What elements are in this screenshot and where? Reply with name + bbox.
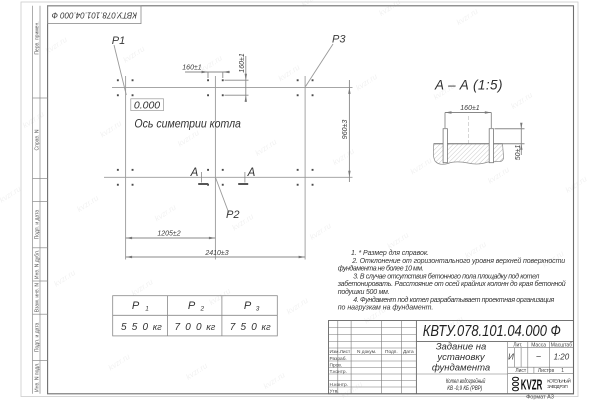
svg-text:Изм.Лист: Изм.Лист — [330, 349, 352, 355]
svg-text:Лист: Лист — [515, 368, 527, 374]
svg-text:960±3: 960±3 — [342, 120, 349, 140]
svg-text:фундамента: фундамента — [432, 363, 490, 374]
svg-text:1: 1 — [145, 306, 149, 313]
svg-text:P1: P1 — [112, 35, 125, 47]
svg-text:550: 550 — [121, 322, 148, 333]
svg-text:50±1: 50±1 — [515, 145, 522, 161]
svg-text:И: И — [508, 353, 514, 362]
svg-text:Подп. и дата: Подп. и дата — [35, 322, 41, 352]
svg-text:по нагрузкам на фундамент.: по нагрузкам на фундамент. — [338, 304, 434, 312]
svg-text:КВТУ.078.101.04.000 Ф: КВТУ.078.101.04.000 Ф — [51, 11, 137, 20]
svg-text:установку: установку — [436, 352, 486, 363]
svg-text:Перв. примен.: Перв. примен. — [35, 21, 41, 54]
svg-text:кг: кг — [262, 322, 271, 333]
svg-text:Взам. инв. N: Взам. инв. N — [35, 283, 41, 313]
svg-text:Утв.: Утв. — [330, 388, 339, 394]
svg-text:Масштаб: Масштаб — [551, 342, 573, 348]
svg-text:KVZR: KVZR — [521, 377, 543, 394]
svg-text:Котел водогрейный: Котел водогрейный — [446, 378, 486, 385]
svg-text:–: – — [535, 352, 541, 361]
svg-text:Т.контр.: Т.контр. — [330, 369, 347, 375]
svg-text:P3: P3 — [332, 34, 346, 46]
svg-text:КВ -0,9 КБ (РВР): КВ -0,9 КБ (РВР) — [447, 386, 482, 392]
svg-text:Формат А3: Формат А3 — [526, 394, 554, 400]
svg-text:160±1: 160±1 — [239, 53, 246, 73]
svg-text:1: 1 — [561, 368, 564, 374]
svg-text:Инв. N дубл.: Инв. N дубл. — [35, 250, 41, 279]
svg-text:700: 700 — [175, 322, 202, 333]
svg-text:1205±2: 1205±2 — [157, 231, 180, 238]
svg-text:Инв. N подл.: Инв. N подл. — [35, 362, 41, 391]
svg-text:подушки 500 мм.: подушки 500 мм. — [338, 288, 390, 296]
svg-text:Разраб.: Разраб. — [330, 356, 347, 362]
svg-text:0.000: 0.000 — [134, 99, 160, 111]
svg-text:N докум.: N докум. — [357, 349, 376, 355]
svg-text:1. * Размер для справок.: 1. * Размер для справок. — [351, 249, 429, 257]
svg-text:160±1: 160±1 — [182, 65, 202, 72]
svg-text:Подп.: Подп. — [385, 349, 398, 355]
svg-text:3. В случае отсутствия бетонно: 3. В случае отсутствия бетонного пола пл… — [353, 272, 539, 280]
svg-text:Подп. и дата: Подп. и дата — [35, 210, 41, 240]
svg-text:Справ. N: Справ. N — [35, 129, 41, 150]
svg-text:Пров.: Пров. — [330, 362, 343, 368]
svg-text:2. Отклонение от горизонтально: 2. Отклонение от горизонтального уровня … — [351, 257, 565, 265]
svg-text:Ось симетрии котла: Ось симетрии котла — [134, 117, 241, 131]
svg-text:кг: кг — [206, 322, 215, 333]
svg-text:P: P — [132, 300, 140, 312]
svg-text:Задание на: Задание на — [436, 342, 487, 353]
svg-text:P2: P2 — [226, 209, 239, 221]
svg-text:A: A — [190, 167, 199, 179]
svg-text:ЗАВОД РЭП: ЗАВОД РЭП — [547, 384, 568, 389]
svg-text:Масса: Масса — [531, 342, 546, 348]
svg-text:фундамента не более 10 мм.: фундамента не более 10 мм. — [338, 265, 424, 273]
svg-text:Лит.: Лит. — [513, 342, 522, 348]
svg-text:забетонировать. Расстояние от: забетонировать. Расстояние от осей крайн… — [337, 280, 566, 288]
svg-text:A: A — [247, 167, 256, 179]
svg-text:КОТЕЛЬНЫЙ: КОТЕЛЬНЫЙ — [547, 377, 571, 384]
svg-text:Листов: Листов — [538, 368, 555, 374]
svg-text:P: P — [188, 300, 196, 312]
svg-text:1:20: 1:20 — [554, 353, 570, 362]
svg-text:4. Фундамент под котел разраба: 4. Фундамент под котел разрабатывает про… — [353, 296, 554, 304]
svg-text:3: 3 — [256, 306, 260, 313]
svg-text:160±1: 160±1 — [460, 105, 480, 112]
svg-text:Дата: Дата — [403, 349, 414, 355]
svg-text:2: 2 — [199, 306, 204, 313]
svg-text:P: P — [244, 300, 252, 312]
svg-text:A – A (1:5): A – A (1:5) — [434, 77, 503, 92]
svg-text:Н.контр.: Н.контр. — [330, 382, 348, 388]
svg-text:кг: кг — [153, 322, 162, 333]
svg-text:750: 750 — [230, 322, 257, 333]
svg-text:2410±3: 2410±3 — [204, 250, 228, 257]
svg-text:КВТУ.078.101.04.000 Ф: КВТУ.078.101.04.000 Ф — [423, 323, 561, 340]
